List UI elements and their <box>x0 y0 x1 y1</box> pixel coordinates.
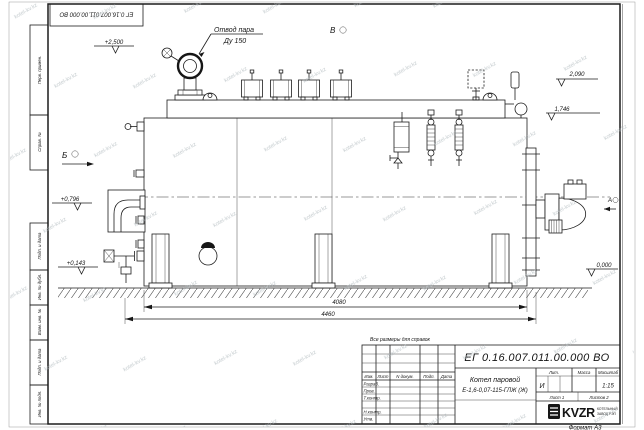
blueprint-page: kotel-kv.kz kotel-kv.kz Перв. примен. Сп… <box>0 0 644 430</box>
watermark-overlay <box>10 3 634 427</box>
engineering-drawing: kotel-kv.kz kotel-kv.kz Перв. примен. Сп… <box>0 0 644 430</box>
